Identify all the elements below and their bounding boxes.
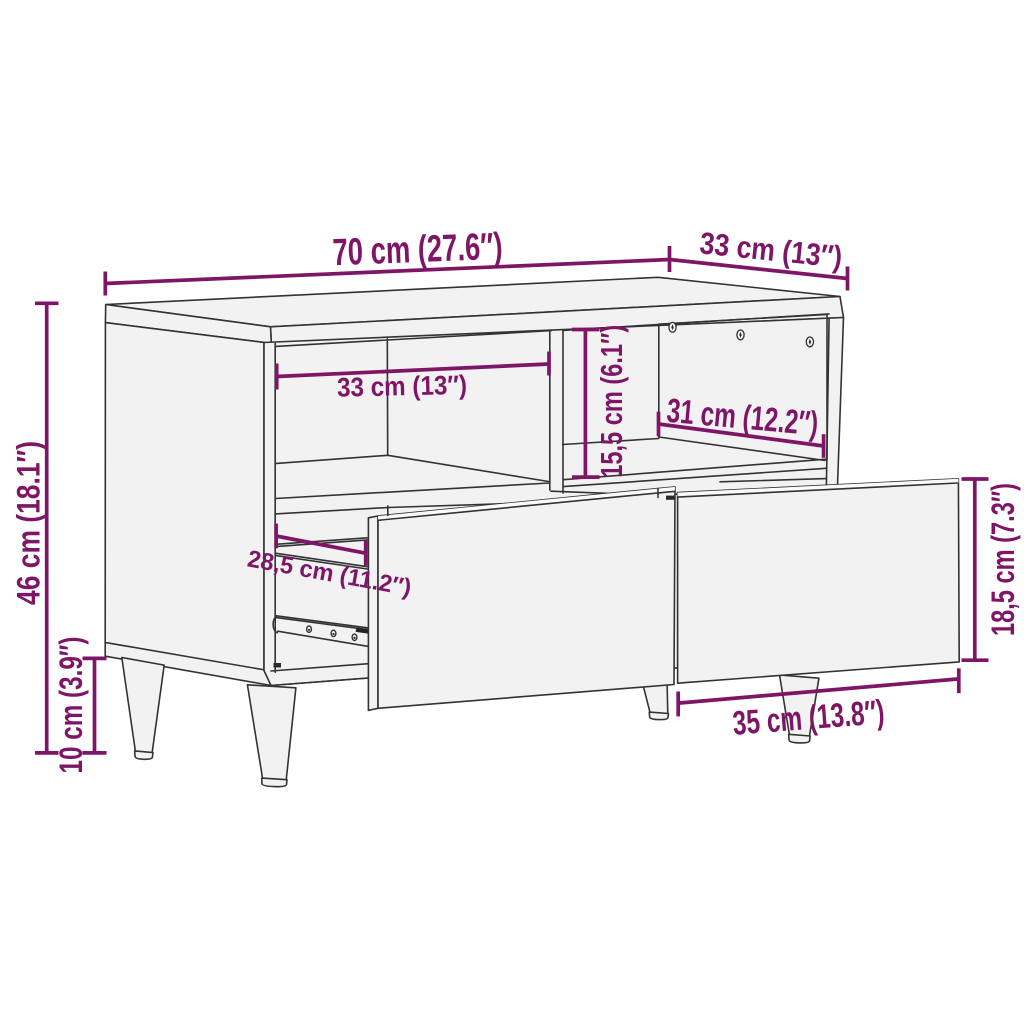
svg-text:18,5 cm (7.3″): 18,5 cm (7.3″) — [985, 483, 1021, 636]
svg-text:15,5 cm (6.1″): 15,5 cm (6.1″) — [594, 325, 629, 478]
svg-text:46 cm (18.1″): 46 cm (18.1″) — [11, 441, 47, 605]
svg-text:70 cm (27.6″): 70 cm (27.6″) — [332, 226, 503, 274]
svg-text:33 cm (13″): 33 cm (13″) — [337, 370, 468, 403]
svg-text:10 cm (3.9″): 10 cm (3.9″) — [53, 637, 89, 774]
